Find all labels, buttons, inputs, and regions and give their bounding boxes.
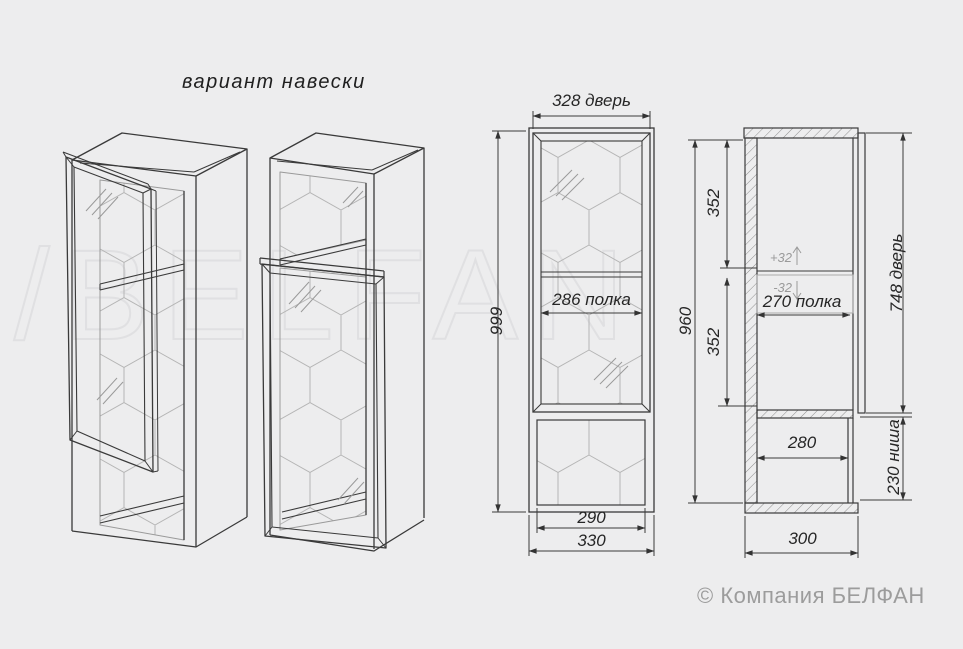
niche-pattern [537, 420, 645, 505]
niche-back-pattern [280, 172, 366, 259]
dim-label-total-width: 330 [529, 532, 654, 550]
back-panel-pattern [100, 180, 184, 540]
mid-bottom-panel [757, 410, 853, 418]
dim-label-niche-height: 230 ниша [885, 412, 903, 502]
dim-label-shelf-depth: 270 полка [748, 293, 856, 311]
dim-label-total-height: 999 [488, 293, 506, 349]
front-view [492, 111, 654, 556]
dim-label-shelf-plus: +32 [764, 249, 792, 267]
arrow-up-icon [793, 247, 801, 265]
dim-label-door-width: 328 дверь [529, 92, 654, 110]
dim-label-side-height: 960 [677, 293, 695, 349]
dim-label-niche-width: 290 [529, 509, 654, 527]
dim-label-total-depth: 300 [745, 530, 860, 548]
door-edge [858, 133, 865, 413]
iso-view-left-cabinet [63, 133, 247, 547]
dim-label-shelf-width: 286 полка [529, 291, 654, 309]
dim-label-door-height: 748 дверь [888, 228, 906, 318]
back-panel-pattern [280, 268, 366, 530]
dim-label-top-section: 352 [705, 175, 723, 231]
drawing-title: вариант навески [182, 71, 366, 94]
iso-view-right-cabinet [260, 133, 424, 551]
dim-label-niche-depth: 280 [748, 434, 856, 452]
technical-drawing-sheet: /BELFAN [0, 0, 963, 649]
top-panel [744, 128, 858, 138]
shelf-line [757, 271, 853, 275]
bottom-panel [745, 503, 858, 513]
dim-label-bottom-section: 352 [705, 314, 723, 370]
niche-front-edge [848, 418, 853, 503]
cabinet-drawing-canvas [0, 0, 963, 649]
copyright: © Компания БЕЛФАН [697, 583, 925, 609]
